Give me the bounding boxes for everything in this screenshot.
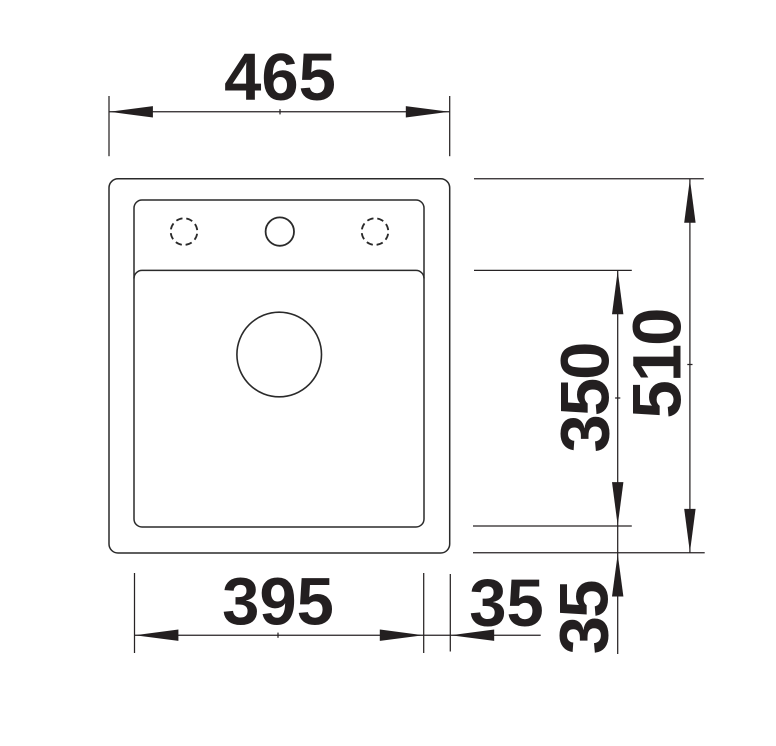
svg-text:350: 350 [546, 343, 623, 452]
svg-text:510: 510 [619, 309, 696, 418]
svg-text:395: 395 [222, 565, 334, 640]
svg-text:35: 35 [546, 581, 623, 654]
svg-text:35: 35 [469, 566, 544, 641]
svg-text:465: 465 [224, 40, 336, 115]
